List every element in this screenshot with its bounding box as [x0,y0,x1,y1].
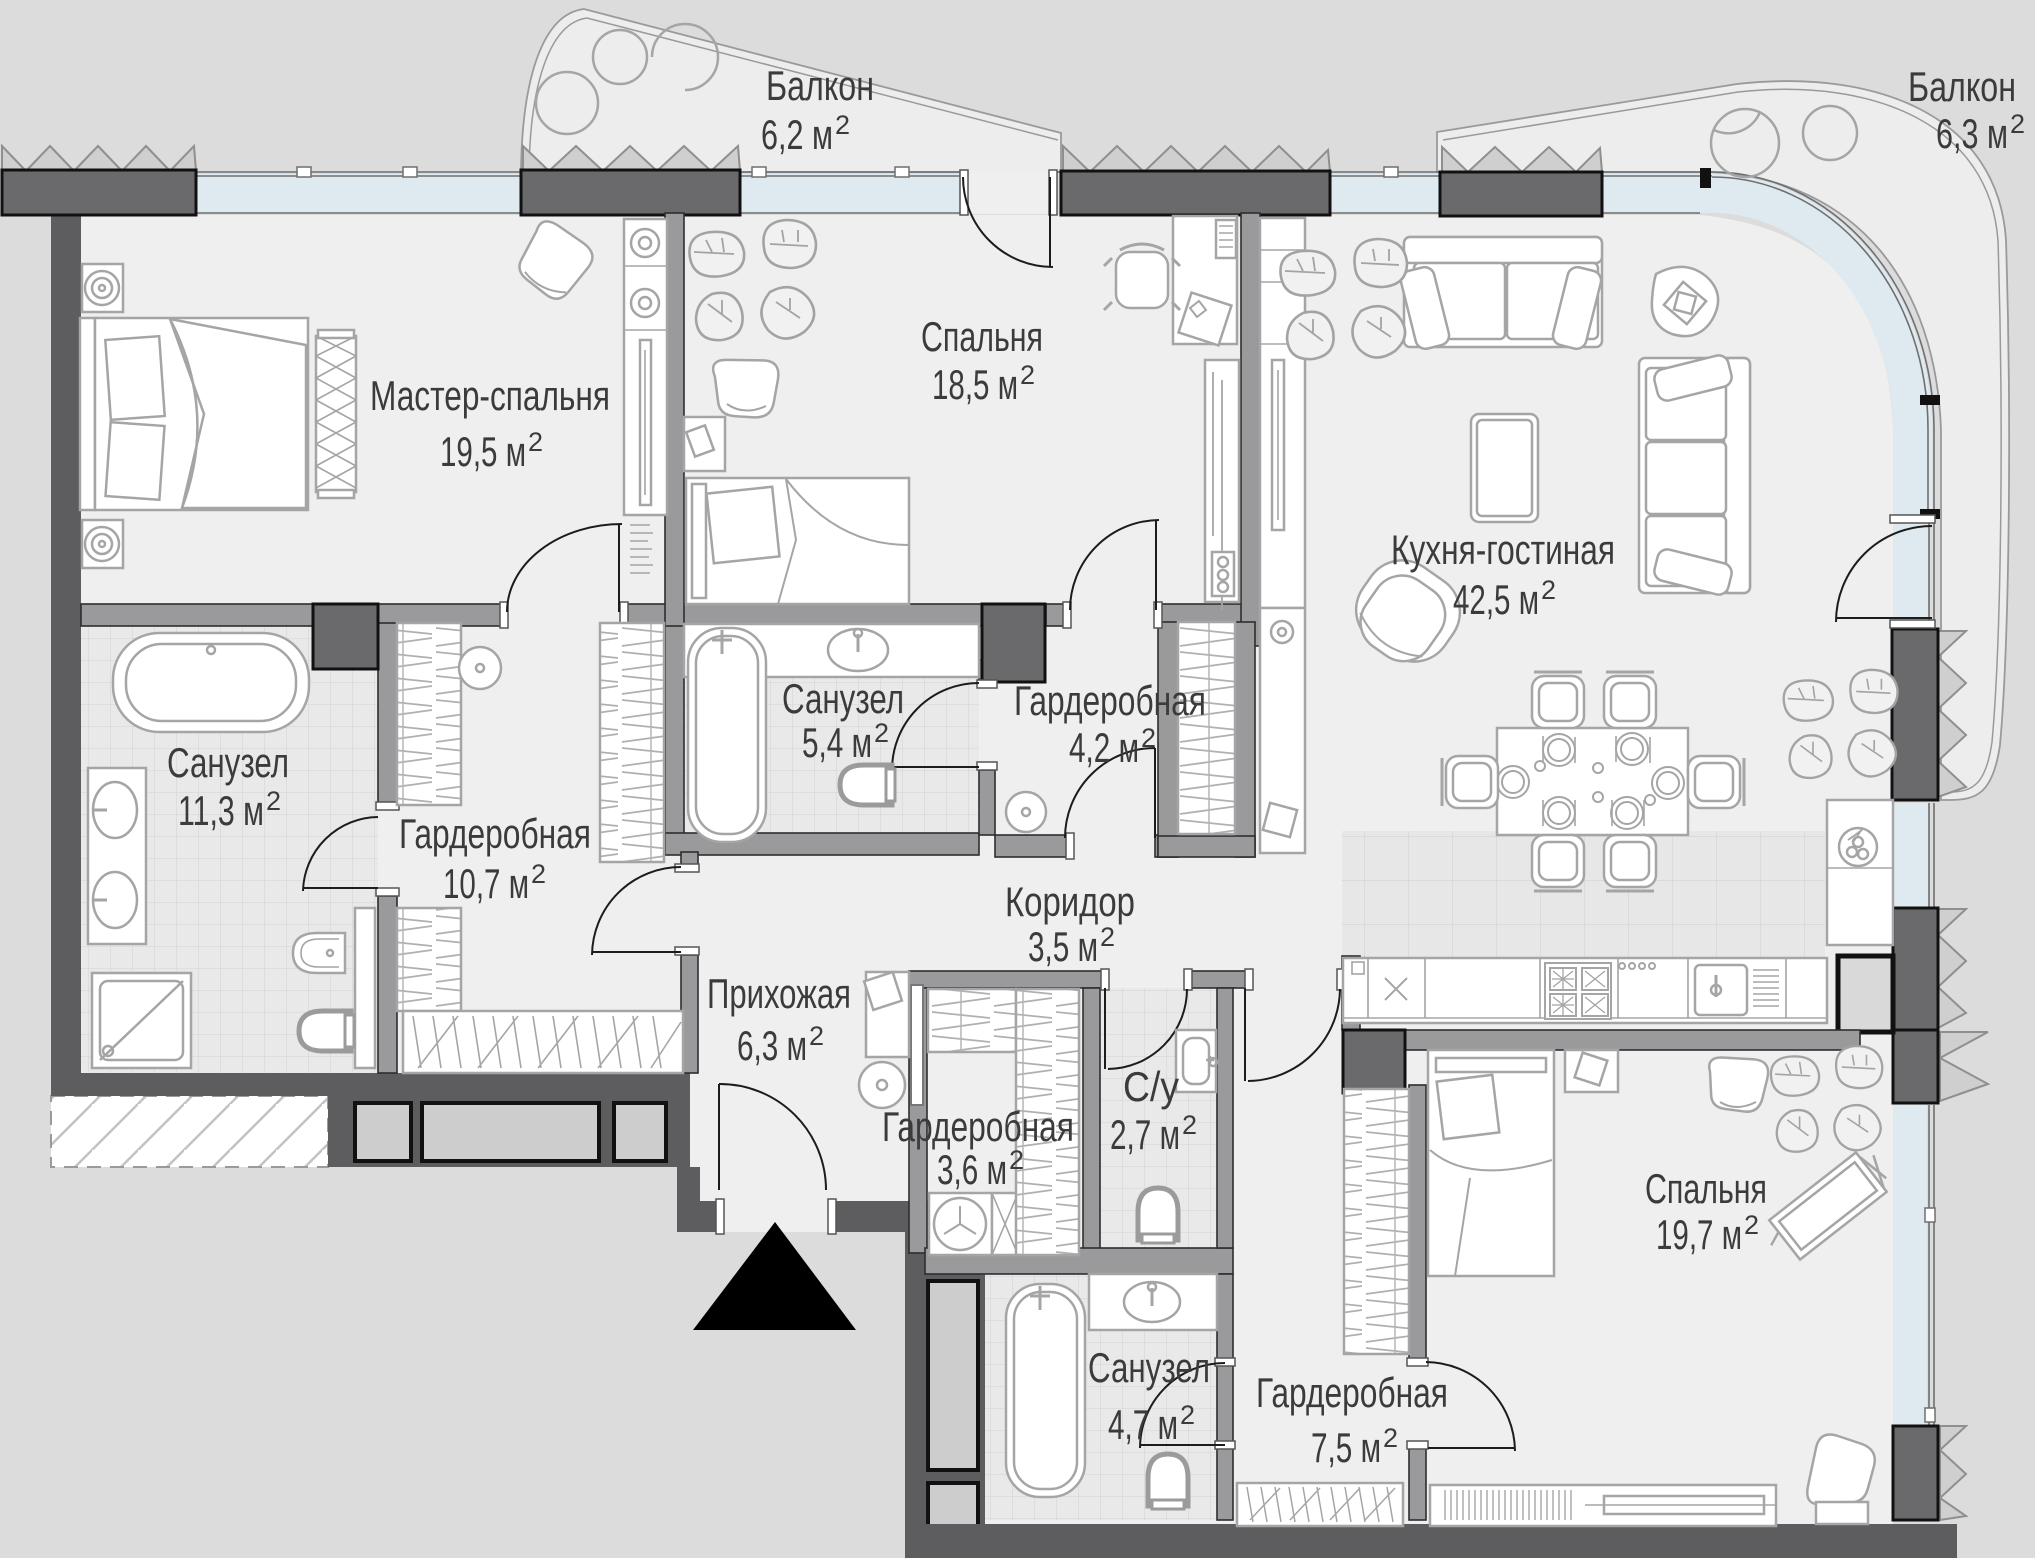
svg-text:10,7 м: 10,7 м [443,860,529,907]
svg-text:Мастер-спальня: Мастер-спальня [370,372,610,419]
svg-text:Коридор: Коридор [1005,878,1135,925]
svg-text:2: 2 [1383,1423,1398,1453]
svg-text:5,4 м: 5,4 м [802,719,872,766]
svg-text:2: 2 [1744,1210,1759,1240]
svg-text:2: 2 [1180,1400,1195,1430]
svg-text:6,3 м: 6,3 м [737,1022,807,1069]
svg-text:2: 2 [1020,360,1035,390]
svg-text:6,3 м: 6,3 м [1936,110,2008,157]
svg-text:Спальня: Спальня [1645,1165,1767,1212]
svg-text:2: 2 [1009,1145,1024,1175]
svg-text:2: 2 [1182,1110,1197,1140]
svg-text:Кухня-гостиная: Кухня-гостиная [1391,526,1615,573]
svg-text:11,3 м: 11,3 м [178,787,264,834]
svg-text:2: 2 [2010,109,2025,139]
svg-text:2: 2 [874,718,889,748]
svg-text:19,7 м: 19,7 м [1656,1211,1742,1258]
svg-text:2: 2 [835,110,850,140]
svg-text:7,5 м: 7,5 м [1311,1424,1381,1471]
svg-text:Гардеробная: Гардеробная [1014,677,1206,724]
svg-text:Санузел: Санузел [167,739,289,786]
svg-text:Спальня: Спальня [921,313,1043,360]
svg-text:3,5 м: 3,5 м [1028,923,1098,970]
svg-text:2: 2 [1100,922,1115,952]
svg-text:Прихожая: Прихожая [707,970,851,1017]
svg-text:С/у: С/у [1123,1063,1179,1110]
svg-text:Санузел: Санузел [782,675,904,722]
svg-text:2: 2 [1541,575,1556,605]
svg-text:Гардеробная: Гардеробная [1256,1369,1448,1416]
svg-text:18,5 м: 18,5 м [932,361,1018,408]
svg-text:Санузел: Санузел [1088,1344,1210,1391]
svg-text:42,5 м: 42,5 м [1453,576,1539,623]
svg-text:Гардеробная: Гардеробная [399,810,591,857]
svg-text:4,2 м: 4,2 м [1069,724,1139,771]
svg-text:2: 2 [809,1021,824,1051]
svg-text:2: 2 [528,427,543,457]
svg-text:Балкон: Балкон [1908,63,2016,110]
svg-text:2: 2 [531,859,546,889]
svg-text:6,2 м: 6,2 м [761,111,833,158]
svg-text:4,7 м: 4,7 м [1108,1401,1178,1448]
svg-text:Балкон: Балкон [766,62,874,109]
svg-text:2: 2 [266,786,281,816]
svg-text:2,7 м: 2,7 м [1110,1111,1180,1158]
svg-text:2: 2 [1141,723,1156,753]
svg-text:Гардеробная: Гардеробная [882,1103,1074,1150]
svg-text:3,6 м: 3,6 м [937,1146,1007,1193]
svg-text:19,5 м: 19,5 м [440,428,526,475]
